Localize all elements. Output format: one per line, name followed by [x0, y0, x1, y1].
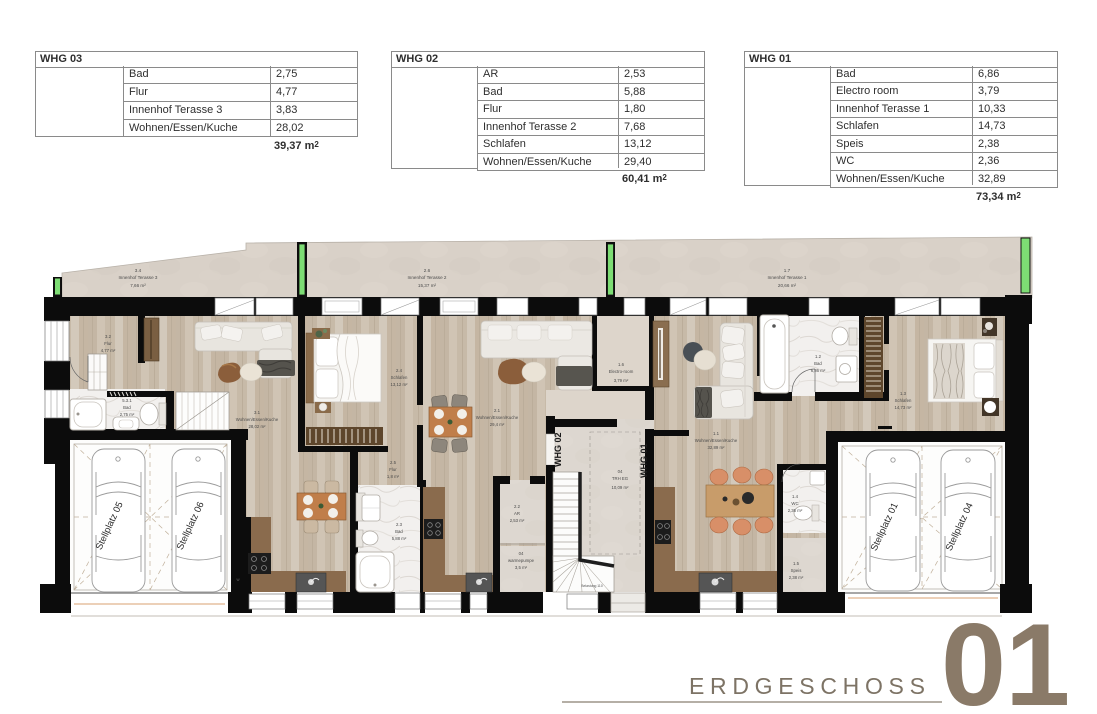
svg-text:3,79 m²: 3,79 m² — [614, 378, 629, 383]
svg-text:2.3: 2.3 — [396, 522, 403, 527]
svg-text:4,77 m²: 4,77 m² — [101, 348, 116, 353]
svg-text:Bad: Bad — [395, 529, 403, 534]
svg-text:1.2: 1.2 — [815, 354, 822, 359]
svg-text:2.5: 2.5 — [390, 460, 397, 465]
svg-text:2.2: 2.2 — [514, 504, 521, 509]
svg-text:Innenhof Terasse 1: Innenhof Terasse 1 — [768, 275, 807, 280]
svg-text:04: 04 — [618, 469, 623, 474]
svg-text:2,75 m²: 2,75 m² — [120, 412, 135, 417]
svg-text:AR: AR — [514, 511, 520, 516]
svg-text:15,37 m²: 15,37 m² — [418, 283, 437, 288]
svg-text:32,89 m²: 32,89 m² — [708, 445, 726, 450]
svg-text:10,09 m²: 10,09 m² — [612, 485, 630, 490]
svg-text:1.6: 1.6 — [618, 362, 625, 367]
svg-text:1.5: 1.5 — [793, 561, 800, 566]
svg-text:Speis: Speis — [791, 568, 802, 573]
svg-text:warmepumpe: warmepumpe — [508, 558, 535, 563]
svg-text:04: 04 — [519, 551, 524, 556]
svg-text:W: W — [236, 578, 239, 582]
svg-text:Innenhof Terasse 2: Innenhof Terasse 2 — [408, 275, 447, 280]
svg-text:7,66 m²: 7,66 m² — [130, 283, 146, 288]
svg-text:1,8 m²: 1,8 m² — [387, 474, 400, 479]
svg-text:Belastung 110: Belastung 110 — [581, 584, 603, 588]
svg-text:Bad: Bad — [123, 405, 131, 410]
svg-text:WHG 01: WHG 01 — [639, 443, 649, 478]
svg-text:1.7: 1.7 — [784, 268, 791, 273]
svg-text:1.4: 1.4 — [792, 494, 799, 499]
svg-text:Wohnen/Essen/Kuche: Wohnen/Essen/Kuche — [236, 417, 279, 422]
svg-text:6,86 m²: 6,86 m² — [811, 368, 826, 373]
svg-text:2,36 m²: 2,36 m² — [788, 508, 803, 513]
svg-text:3.4: 3.4 — [135, 268, 142, 273]
svg-text:3,5 m²: 3,5 m² — [515, 565, 528, 570]
svg-text:Wohnen/Essen/Kuche: Wohnen/Essen/Kuche — [695, 438, 738, 443]
svg-text:1.3: 1.3 — [900, 391, 907, 396]
svg-text:Wohnen/Essen/Kuche: Wohnen/Essen/Kuche — [476, 415, 519, 420]
svg-text:2.4: 2.4 — [396, 368, 403, 373]
svg-text:14,73 m²: 14,73 m² — [895, 405, 913, 410]
svg-text:13,12 m²: 13,12 m² — [391, 382, 409, 387]
svg-text:28,02 m²: 28,02 m² — [249, 424, 267, 429]
svg-text:Innenhof Terasse 3: Innenhof Terasse 3 — [119, 275, 158, 280]
svg-text:WC: WC — [791, 501, 798, 506]
svg-text:Electro-room: Electro-room — [609, 369, 634, 374]
svg-text:Schlafen: Schlafen — [391, 375, 408, 380]
svg-text:2.1: 2.1 — [494, 408, 501, 413]
svg-text:3.2: 3.2 — [105, 334, 112, 339]
svg-text:WHG 02: WHG 02 — [553, 432, 563, 467]
svg-text:TRH EG: TRH EG — [612, 476, 629, 481]
svg-text:3.1: 3.1 — [254, 410, 261, 415]
svg-text:20,66 m²: 20,66 m² — [778, 283, 797, 288]
svg-text:1.1: 1.1 — [713, 431, 720, 436]
svg-text:Bad: Bad — [814, 361, 822, 366]
svg-text:Schlafen: Schlafen — [895, 398, 912, 403]
svg-text:2,38 m²: 2,38 m² — [789, 575, 804, 580]
svg-text:2,53 m²: 2,53 m² — [510, 518, 525, 523]
svg-text:29,4 m²: 29,4 m² — [490, 422, 505, 427]
svg-text:2.6: 2.6 — [424, 268, 431, 273]
svg-text:5.3.1: 5.3.1 — [122, 398, 132, 403]
svg-text:Flur: Flur — [104, 341, 112, 346]
svg-text:Flur: Flur — [389, 467, 397, 472]
svg-text:5,88 m²: 5,88 m² — [392, 536, 407, 541]
